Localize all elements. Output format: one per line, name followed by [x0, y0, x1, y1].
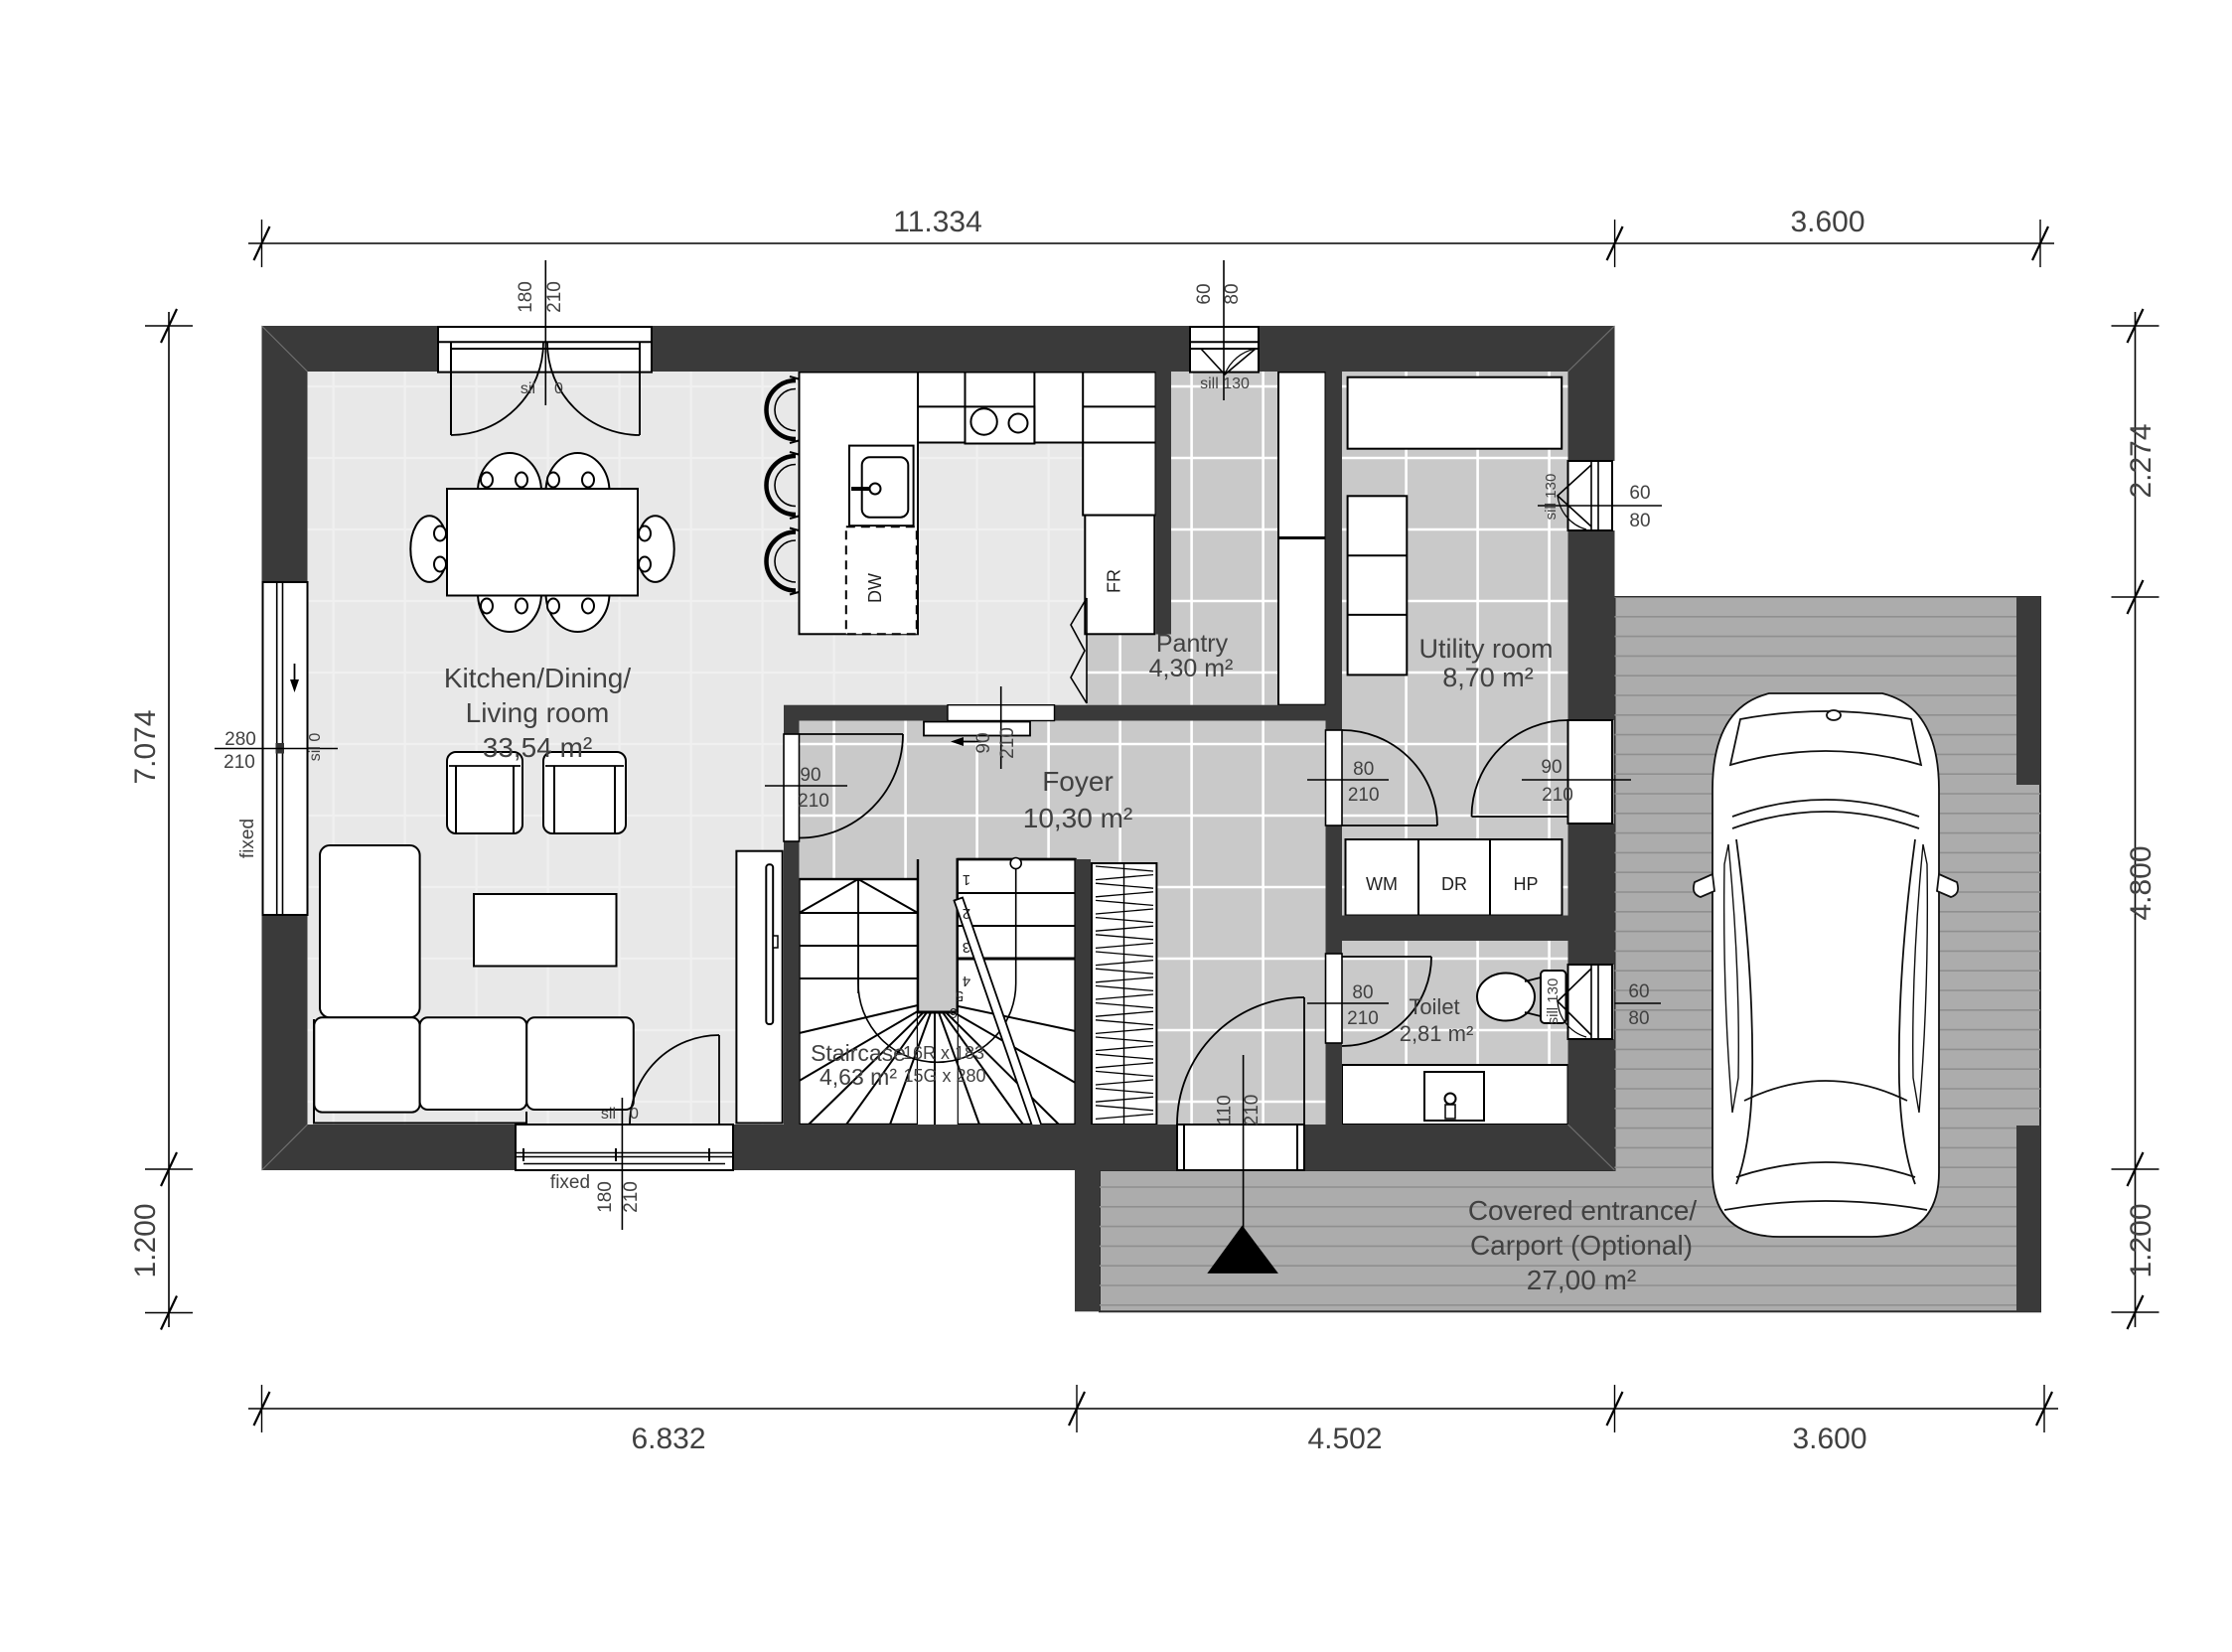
svg-text:Toilet: Toilet — [1409, 994, 1459, 1019]
svg-text:HP: HP — [1513, 874, 1538, 894]
svg-text:60: 60 — [1194, 283, 1215, 304]
svg-text:Carport (Optional): Carport (Optional) — [1470, 1230, 1693, 1261]
svg-text:4.502: 4.502 — [1307, 1423, 1382, 1455]
svg-text:WM: WM — [1366, 874, 1398, 894]
svg-text:2,81 m²: 2,81 m² — [1400, 1021, 1474, 1046]
svg-text:0: 0 — [554, 380, 563, 397]
svg-text:Utility room: Utility room — [1418, 634, 1553, 664]
svg-text:Pantry: Pantry — [1156, 630, 1229, 658]
svg-text:FR: FR — [1105, 569, 1124, 593]
svg-text:210: 210 — [621, 1181, 642, 1213]
svg-text:80: 80 — [1628, 1008, 1649, 1029]
svg-text:Covered entrance/: Covered entrance/ — [1468, 1195, 1698, 1226]
svg-text:180: 180 — [595, 1181, 616, 1213]
svg-text:110: 110 — [1215, 1095, 1236, 1125]
svg-text:33,54 m²: 33,54 m² — [483, 732, 593, 763]
svg-text:3: 3 — [963, 939, 970, 956]
svg-text:27,00 m²: 27,00 m² — [1527, 1265, 1637, 1295]
svg-text:4.800: 4.800 — [2125, 845, 2158, 920]
svg-text:sil: sil — [521, 380, 535, 397]
svg-text:80: 80 — [1352, 982, 1373, 1003]
svg-text:Foyer: Foyer — [1042, 766, 1114, 797]
svg-text:2: 2 — [963, 905, 970, 922]
svg-text:210: 210 — [798, 791, 829, 812]
svg-text:7.074: 7.074 — [129, 709, 162, 784]
svg-text:90: 90 — [800, 765, 820, 786]
svg-text:210: 210 — [544, 281, 565, 313]
svg-text:210: 210 — [223, 752, 255, 773]
svg-text:16R x 183: 16R x 183 — [903, 1043, 984, 1063]
svg-text:90: 90 — [1541, 757, 1562, 778]
svg-text:2.274: 2.274 — [2125, 423, 2158, 498]
svg-text:6: 6 — [950, 1004, 958, 1021]
svg-text:15G x 280: 15G x 280 — [903, 1066, 985, 1086]
svg-text:210: 210 — [997, 727, 1018, 759]
svg-text:80: 80 — [1353, 759, 1374, 780]
svg-text:sil: sil — [601, 1106, 616, 1123]
svg-text:Living room: Living room — [466, 697, 610, 728]
svg-text:5: 5 — [956, 987, 964, 1004]
svg-text:210: 210 — [1542, 785, 1573, 806]
svg-text:3.600: 3.600 — [1790, 206, 1864, 238]
svg-text:DW: DW — [865, 573, 885, 603]
svg-text:3.600: 3.600 — [1792, 1423, 1866, 1455]
svg-text:80: 80 — [1629, 511, 1650, 531]
svg-text:6.832: 6.832 — [631, 1423, 705, 1455]
svg-text:Kitchen/Dining/: Kitchen/Dining/ — [444, 663, 632, 693]
svg-text:210: 210 — [1347, 1008, 1379, 1029]
svg-text:10,30 m²: 10,30 m² — [1023, 803, 1133, 833]
svg-text:210: 210 — [1242, 1095, 1263, 1126]
svg-text:DR: DR — [1441, 874, 1467, 894]
svg-text:90: 90 — [973, 732, 994, 753]
svg-text:sill 130: sill 130 — [1200, 375, 1250, 392]
svg-text:4,63 m²: 4,63 m² — [819, 1064, 897, 1090]
svg-text:fixed: fixed — [237, 819, 258, 858]
svg-text:sil 0: sil 0 — [307, 733, 324, 762]
svg-text:280: 280 — [224, 729, 256, 750]
svg-text:4,30 m²: 4,30 m² — [1149, 655, 1234, 682]
svg-text:sill 130: sill 130 — [1543, 474, 1560, 521]
svg-text:11.334: 11.334 — [893, 206, 982, 238]
svg-text:fixed: fixed — [550, 1172, 590, 1193]
svg-text:4: 4 — [963, 973, 970, 989]
svg-text:Staircase: Staircase — [811, 1040, 906, 1066]
svg-text:60: 60 — [1629, 483, 1650, 504]
svg-text:1.200: 1.200 — [2125, 1203, 2158, 1277]
svg-text:sill 130: sill 130 — [1545, 978, 1562, 1025]
svg-text:1: 1 — [963, 871, 970, 888]
svg-text:210: 210 — [1348, 785, 1380, 806]
svg-text:8,70 m²: 8,70 m² — [1442, 663, 1534, 692]
svg-text:180: 180 — [516, 281, 536, 313]
svg-text:0: 0 — [630, 1106, 639, 1123]
svg-text:1.200: 1.200 — [129, 1203, 162, 1277]
svg-text:80: 80 — [1222, 283, 1243, 304]
svg-text:60: 60 — [1628, 981, 1649, 1002]
